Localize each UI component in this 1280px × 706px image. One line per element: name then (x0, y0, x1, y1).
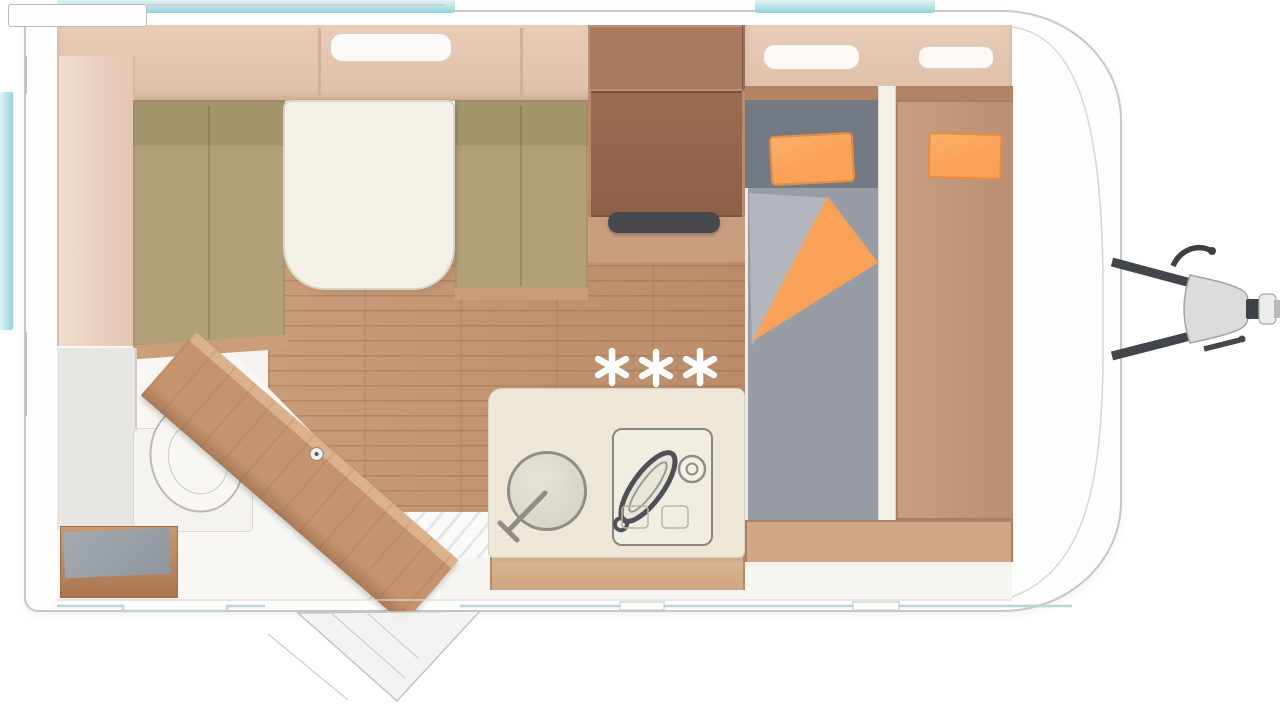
gas-box-outline (8, 4, 147, 27)
storage-box-top (63, 528, 171, 579)
dinette-bench-right (455, 100, 588, 292)
bed-pillow-left (769, 132, 856, 186)
entry-door-panel (298, 611, 480, 701)
floor-under-bed (745, 562, 1012, 600)
door-panel-lines (268, 612, 418, 700)
locker-divider (520, 28, 523, 98)
tow-hitch (1112, 247, 1280, 356)
wall-tick-upper (25, 56, 27, 94)
side-backrest (57, 56, 135, 346)
hitch-bar-upper (1112, 262, 1206, 287)
tall-cabinet-upper-shelf (588, 25, 745, 93)
locker-divider (318, 28, 321, 98)
skylight-slot (330, 33, 452, 62)
skylight-slot (918, 46, 994, 69)
bed-divider (878, 86, 896, 562)
stove (612, 428, 713, 546)
window-strip-left (0, 92, 13, 330)
skylight-slot (763, 44, 860, 70)
body-outline-line (147, 4, 445, 6)
door-handle (307, 444, 327, 464)
bed-pillow-right (927, 132, 1002, 180)
jockey-handle (1204, 340, 1240, 349)
hitch-housing (1184, 275, 1248, 343)
kitchen-sink (507, 451, 587, 531)
cabinet-handle-bar (608, 212, 720, 233)
hitch-neck (1246, 299, 1260, 319)
handbrake-lever (1173, 248, 1210, 266)
window-strip-top-right (755, 0, 935, 13)
cushion-seam (208, 106, 210, 340)
caravan-floorplan (0, 0, 1280, 706)
jockey-knob (1239, 336, 1246, 343)
bench-trim (455, 288, 588, 300)
hitch-tip (1274, 300, 1280, 318)
hitch-bar-lower (1112, 332, 1206, 356)
dinette-bench-left (133, 100, 285, 346)
cushion-seam (520, 106, 522, 286)
hitch-coupling-head (1259, 294, 1276, 324)
toilet-cistern (57, 348, 137, 530)
dinette-table (283, 100, 455, 290)
wall-tick-lower (25, 332, 27, 416)
handbrake-knob (1208, 247, 1216, 255)
bed-drawer-band (745, 520, 1013, 562)
entry-door-open (268, 611, 480, 701)
tall-cabinet (588, 91, 745, 217)
